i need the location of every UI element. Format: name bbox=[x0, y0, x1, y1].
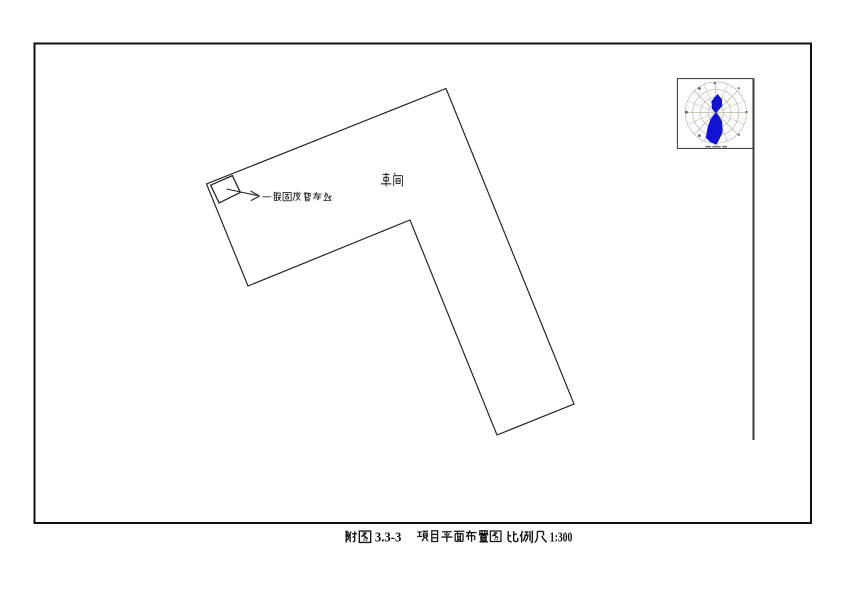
svg-text:3.3-3: 3.3-3 bbox=[375, 531, 402, 546]
svg-text:1:300: 1:300 bbox=[550, 531, 573, 546]
